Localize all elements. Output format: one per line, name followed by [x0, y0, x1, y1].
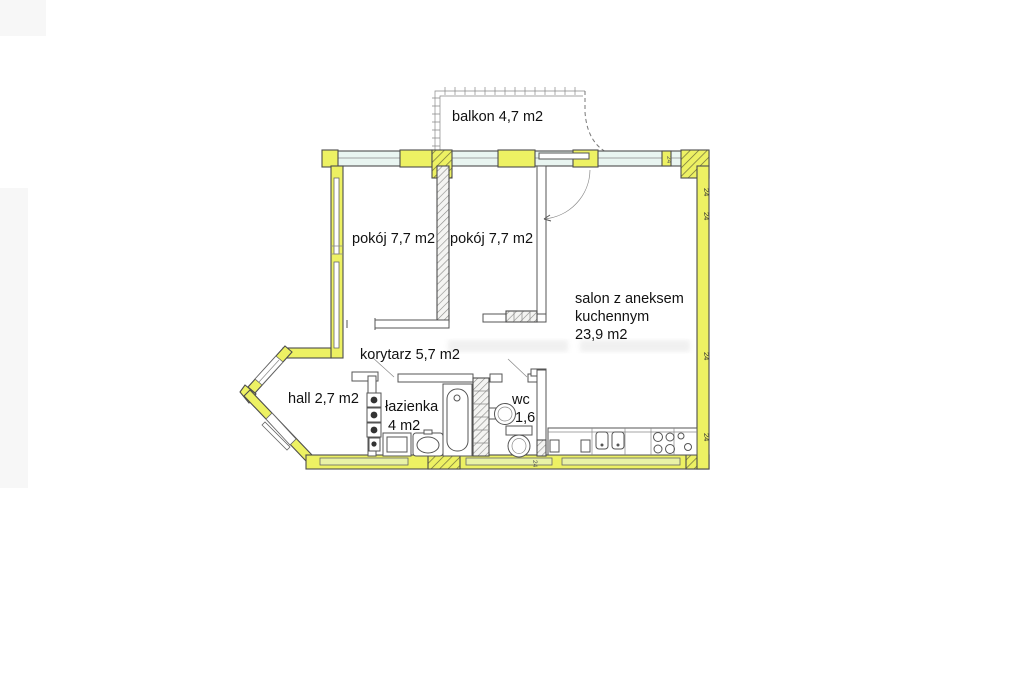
balcony-door-leaf — [539, 153, 589, 159]
toilet — [506, 426, 532, 457]
window-sill — [466, 458, 552, 465]
label-hall: hall 2,7 m2 — [288, 391, 359, 407]
kitchen-counter — [548, 428, 697, 455]
wc-wall-hatched-foot — [537, 440, 546, 456]
door-swing-arc — [544, 170, 590, 219]
pokoj2-built-in-block — [506, 311, 537, 322]
dim-24: 24 — [531, 460, 538, 468]
background-patches — [0, 0, 46, 488]
dim-24: 24 — [702, 212, 711, 220]
window-sill — [320, 458, 408, 465]
label-wc-1: wc — [511, 392, 530, 408]
partition-pokoj2-salon — [537, 166, 546, 322]
bg-patch — [0, 0, 46, 36]
dim-24: 24 — [702, 433, 711, 441]
window-sill — [562, 458, 680, 465]
window-slot — [334, 178, 339, 254]
cabinet-front — [581, 440, 590, 452]
floor-plan: balkon 4,7 m2 pokój 7,7 m2 pokój 7,7 m2 … — [0, 0, 1024, 682]
screenshot-canvas: balkon 4,7 m2 pokój 7,7 m2 pokój 7,7 m2 … — [0, 0, 1024, 682]
wall-pier — [322, 150, 338, 167]
bg-patch — [0, 188, 28, 488]
wall-hatched-block — [428, 455, 460, 469]
dim-24: 24 — [702, 188, 711, 196]
balcony-railing-dashed-edge — [585, 91, 606, 152]
label-wc-2: 1,6 — [515, 410, 535, 426]
label-salon-2: kuchennym — [575, 309, 649, 325]
dim-24: 24 — [665, 156, 672, 164]
plumbing-riser-icons — [367, 393, 381, 451]
wall-pier — [498, 150, 535, 167]
washing-machine — [383, 433, 411, 456]
bathroom-top-wall — [398, 374, 473, 382]
pokoj1-door-jambs — [347, 318, 375, 330]
left-exterior-wall — [283, 166, 343, 358]
label-pokoj-2: pokój 7,7 m2 — [450, 231, 533, 247]
watermark — [448, 340, 690, 352]
label-salon-1: salon z aneksem — [575, 291, 684, 307]
bottom-exterior-wall — [306, 455, 709, 469]
pokoj1-bottom-wall — [375, 320, 449, 328]
label-lazienka-2: 4 m2 — [388, 418, 420, 434]
cabinet-front — [550, 440, 559, 452]
label-balkon: balkon 4,7 m2 — [452, 109, 543, 125]
label-lazienka-1: łazienka — [385, 399, 439, 415]
label-salon-3: 23,9 m2 — [575, 327, 627, 343]
balcony-door-swing — [544, 170, 590, 221]
window-slot — [334, 262, 339, 348]
dim-24: 24 — [702, 352, 711, 360]
bathtub — [443, 384, 472, 456]
label-pokoj-1: pokój 7,7 m2 — [352, 231, 435, 247]
top-exterior-wall — [322, 150, 709, 178]
wc-top-wall-left — [490, 374, 502, 382]
wall-pier — [400, 150, 432, 167]
label-korytarz: korytarz 5,7 m2 — [360, 347, 460, 363]
partition-pokoj1-pokoj2 — [437, 166, 449, 322]
